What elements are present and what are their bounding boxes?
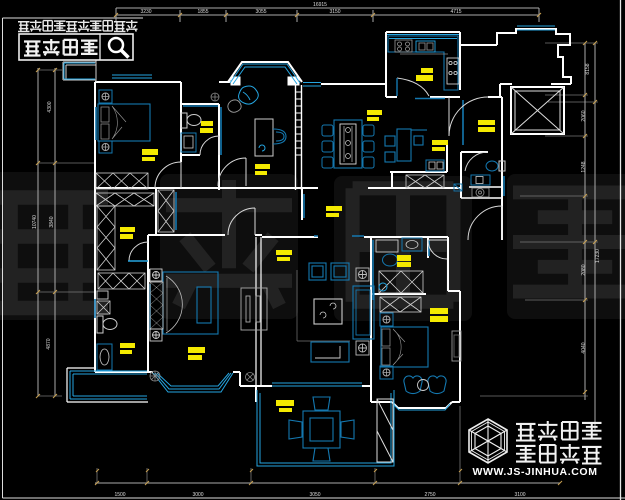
svg-text:WWW.JS-JINHUA.COM: WWW.JS-JINHUA.COM: [472, 466, 597, 478]
svg-text:3055: 3055: [255, 9, 266, 15]
svg-text:2080: 2080: [581, 264, 587, 275]
svg-text:3100: 3100: [514, 492, 525, 498]
svg-text:3840: 3840: [49, 216, 55, 227]
svg-text:2750: 2750: [424, 492, 435, 498]
svg-text:4300: 4300: [47, 101, 53, 112]
svg-text:1855: 1855: [197, 9, 208, 15]
svg-text:4715: 4715: [450, 9, 461, 15]
svg-text:3000: 3000: [192, 492, 203, 498]
svg-text:4870: 4870: [46, 338, 52, 349]
svg-text:1500: 1500: [114, 492, 125, 498]
svg-text:3050: 3050: [309, 492, 320, 498]
svg-text:16915: 16915: [313, 2, 327, 8]
svg-text:4040: 4040: [581, 342, 587, 353]
svg-text:17230: 17230: [595, 249, 601, 263]
svg-text:3150: 3150: [329, 9, 340, 15]
svg-text:8158: 8158: [585, 63, 591, 74]
svg-text:3230: 3230: [140, 9, 151, 15]
svg-text:2060: 2060: [581, 110, 587, 121]
svg-text:10740: 10740: [32, 215, 38, 229]
svg-text:1248: 1248: [581, 161, 587, 172]
